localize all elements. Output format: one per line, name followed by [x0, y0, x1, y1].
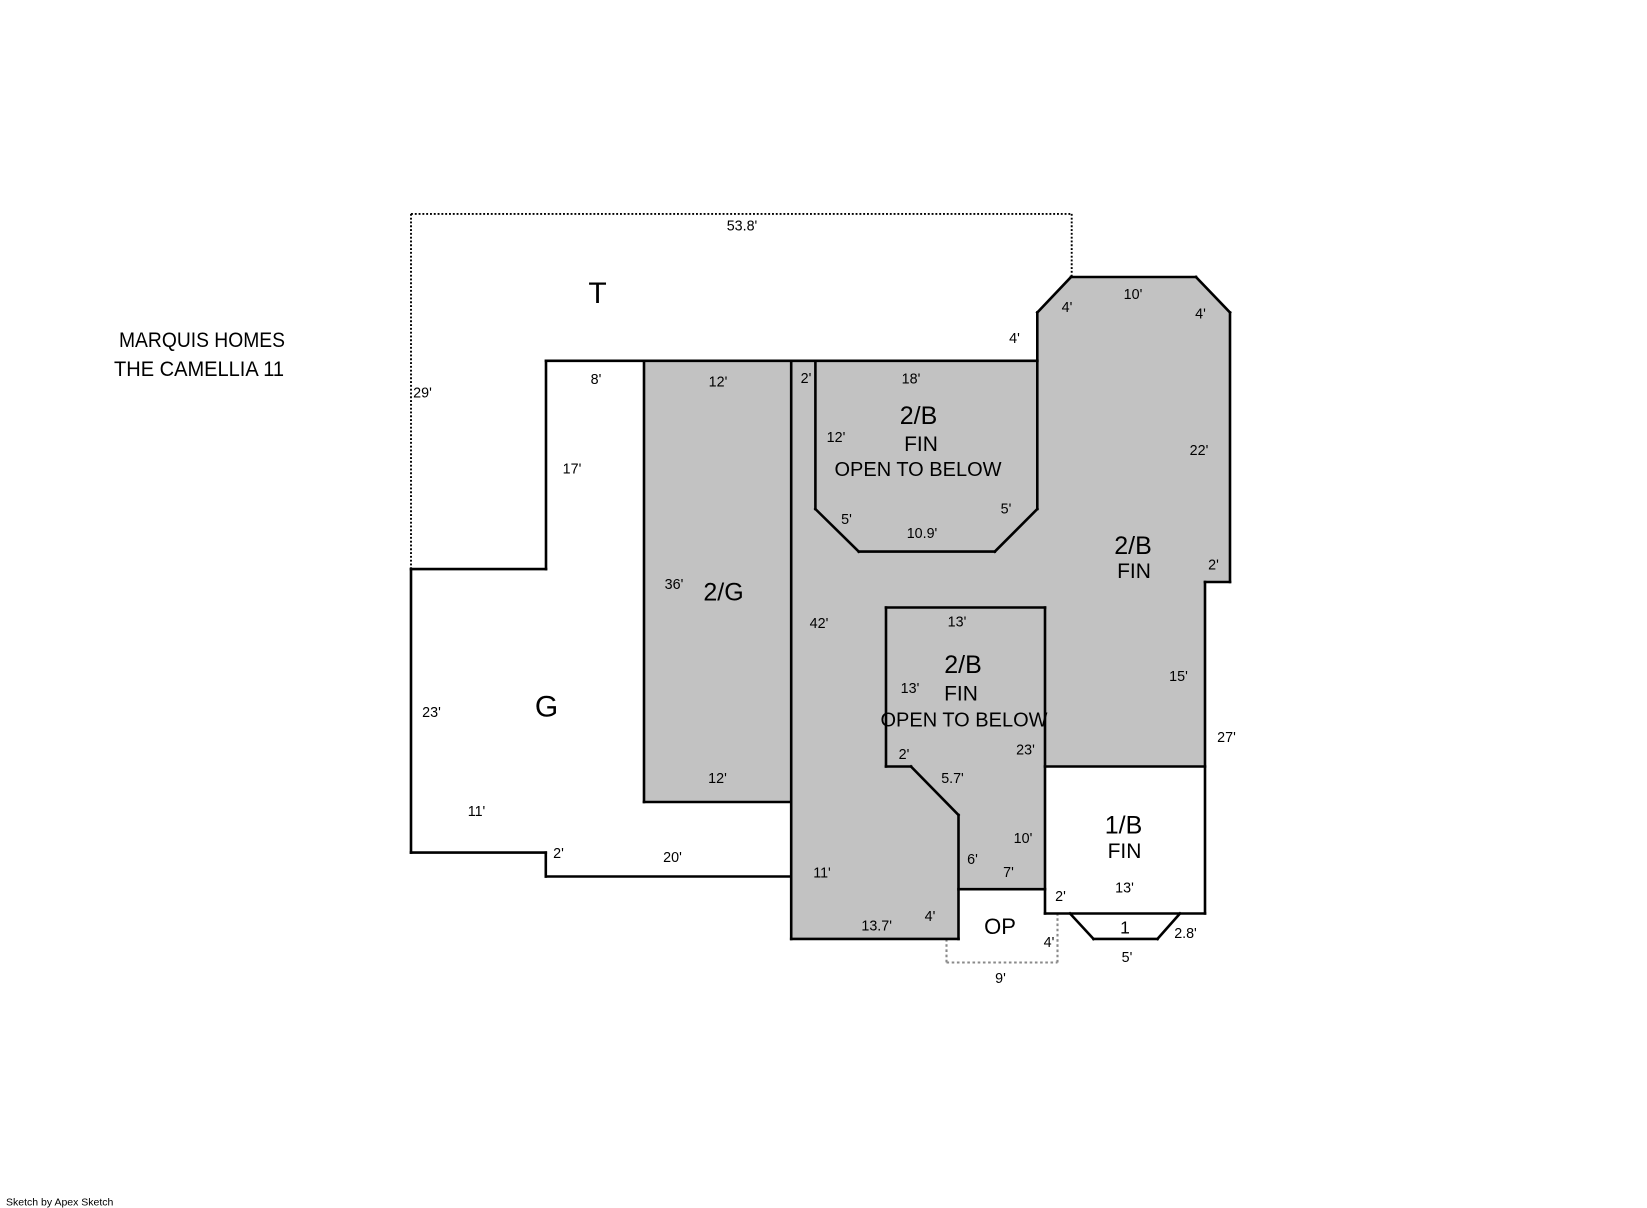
svg-text:10': 10': [1124, 287, 1143, 303]
svg-text:OPEN TO BELOW: OPEN TO BELOW: [834, 459, 1001, 481]
svg-text:1: 1: [1120, 918, 1130, 938]
svg-text:4': 4': [1009, 331, 1020, 347]
svg-text:FIN: FIN: [944, 683, 978, 706]
svg-text:7': 7': [1003, 865, 1014, 881]
svg-text:10.9': 10.9': [907, 526, 938, 542]
svg-text:2/G: 2/G: [703, 579, 743, 607]
svg-text:27': 27': [1217, 730, 1236, 746]
svg-text:9': 9': [995, 971, 1006, 987]
svg-text:22': 22': [1190, 443, 1209, 459]
svg-text:2': 2': [801, 371, 812, 387]
svg-text:2.8': 2.8': [1174, 926, 1197, 942]
svg-text:4': 4': [1195, 307, 1206, 323]
svg-text:13': 13': [1115, 881, 1134, 897]
svg-text:4': 4': [925, 909, 936, 925]
svg-text:15': 15': [1169, 669, 1188, 685]
svg-text:OPEN TO BELOW: OPEN TO BELOW: [880, 710, 1047, 732]
svg-text:13': 13': [948, 615, 967, 631]
svg-text:17': 17': [563, 462, 582, 478]
svg-text:8': 8': [591, 372, 602, 388]
svg-text:2': 2': [1055, 889, 1066, 905]
svg-text:MARQUIS HOMES: MARQUIS HOMES: [119, 329, 285, 352]
svg-text:18': 18': [902, 372, 921, 388]
svg-text:12': 12': [709, 375, 728, 391]
svg-text:2': 2': [899, 747, 910, 763]
svg-text:5.7': 5.7': [941, 771, 964, 787]
svg-text:THE CAMELLIA 11: THE CAMELLIA 11: [114, 358, 284, 381]
svg-text:G: G: [535, 691, 558, 724]
svg-text:53.8': 53.8': [727, 219, 758, 235]
svg-text:42': 42': [810, 616, 829, 632]
svg-text:11': 11': [813, 866, 831, 882]
svg-text:2': 2': [553, 846, 564, 862]
svg-text:T: T: [588, 277, 606, 310]
svg-text:6': 6': [967, 852, 978, 868]
svg-text:13.7': 13.7': [861, 919, 892, 935]
svg-text:12': 12': [827, 430, 846, 446]
svg-text:10': 10': [1014, 831, 1033, 847]
svg-text:OP: OP: [984, 914, 1016, 939]
svg-text:36': 36': [665, 577, 684, 593]
svg-text:FIN: FIN: [904, 433, 938, 456]
svg-text:4': 4': [1044, 935, 1055, 951]
svg-text:5': 5': [1001, 502, 1012, 518]
svg-text:4': 4': [1062, 300, 1073, 316]
svg-text:FIN: FIN: [1117, 560, 1151, 583]
svg-text:2/B: 2/B: [944, 651, 982, 679]
svg-text:12': 12': [708, 771, 727, 787]
svg-text:23': 23': [1016, 743, 1035, 759]
svg-text:23': 23': [422, 705, 441, 721]
svg-text:5': 5': [841, 512, 852, 528]
svg-text:FIN: FIN: [1108, 840, 1142, 863]
svg-text:2/B: 2/B: [1114, 532, 1152, 560]
svg-text:1/B: 1/B: [1105, 812, 1143, 840]
svg-text:5': 5': [1122, 950, 1133, 966]
svg-text:20': 20': [663, 850, 682, 866]
svg-text:13': 13': [901, 681, 920, 697]
svg-text:Sketch by Apex Sketch: Sketch by Apex Sketch: [6, 1197, 114, 1208]
svg-text:29': 29': [413, 386, 432, 402]
svg-text:2': 2': [1208, 558, 1219, 574]
svg-text:11': 11': [468, 804, 486, 820]
svg-text:2/B: 2/B: [900, 402, 938, 430]
